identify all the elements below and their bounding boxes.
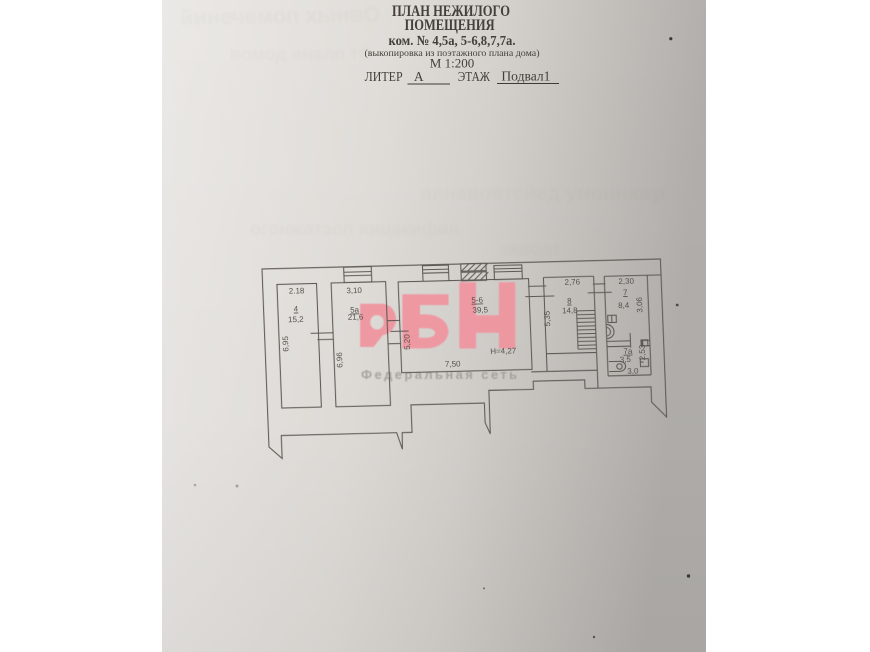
svg-text:ЭТАЖ: ЭТАЖ — [458, 69, 491, 84]
svg-text:3,10: 3,10 — [346, 286, 362, 295]
svg-text:ПОМЕЩЕНИЯ: ПОМЕЩЕНИЯ — [405, 17, 495, 34]
svg-text:2,76: 2,76 — [564, 277, 580, 286]
svg-text:39,5: 39,5 — [472, 305, 488, 314]
svg-text:3,5: 3,5 — [620, 355, 632, 364]
svg-text:14,8: 14,8 — [562, 306, 578, 315]
svg-text:акводт: акводт — [500, 239, 561, 259]
svg-text:ком. № 4,5а, 5-6,8,7,7а.: ком. № 4,5а, 5-6,8,7,7а. — [389, 34, 516, 49]
svg-text:вомод аналп тО: вомод аналп тО — [230, 44, 373, 64]
svg-text:6,96: 6,96 — [335, 352, 345, 368]
svg-text:Н=4,27: Н=4,27 — [490, 346, 517, 356]
svg-text:6,95: 6,95 — [281, 335, 291, 351]
svg-text:йинечемоп хынвО: йинечемоп хынвО — [180, 2, 381, 30]
svg-text:8,4: 8,4 — [618, 301, 630, 310]
svg-text:2,30: 2,30 — [618, 277, 634, 286]
svg-text:21,6: 21,6 — [348, 312, 364, 321]
svg-text:А: А — [414, 69, 424, 84]
svg-text:2.18: 2.18 — [289, 286, 305, 295]
svg-text:3,06: 3,06 — [635, 296, 645, 312]
svg-text:5,35: 5,35 — [543, 310, 553, 326]
svg-text:7,50: 7,50 — [445, 359, 461, 368]
svg-text:5,20: 5,20 — [402, 334, 412, 350]
svg-text:5-6: 5-6 — [471, 295, 483, 304]
svg-text:ЛИТЕР: ЛИТЕР — [365, 69, 403, 84]
svg-text:15,2: 15,2 — [288, 315, 304, 324]
svg-text:2,53: 2,53 — [638, 344, 648, 360]
svg-text:яинавовтсйед умоннажр: яинавовтсйед умоннажр — [419, 183, 665, 205]
svg-text:Федеральная сеть: Федеральная сеть — [361, 367, 520, 382]
svg-text:огонжатэоп яицакифин: огонжатэоп яицакифин — [250, 219, 459, 239]
svg-text:3,0: 3,0 — [627, 366, 639, 375]
svg-text:Подвал1: Подвал1 — [501, 69, 550, 84]
